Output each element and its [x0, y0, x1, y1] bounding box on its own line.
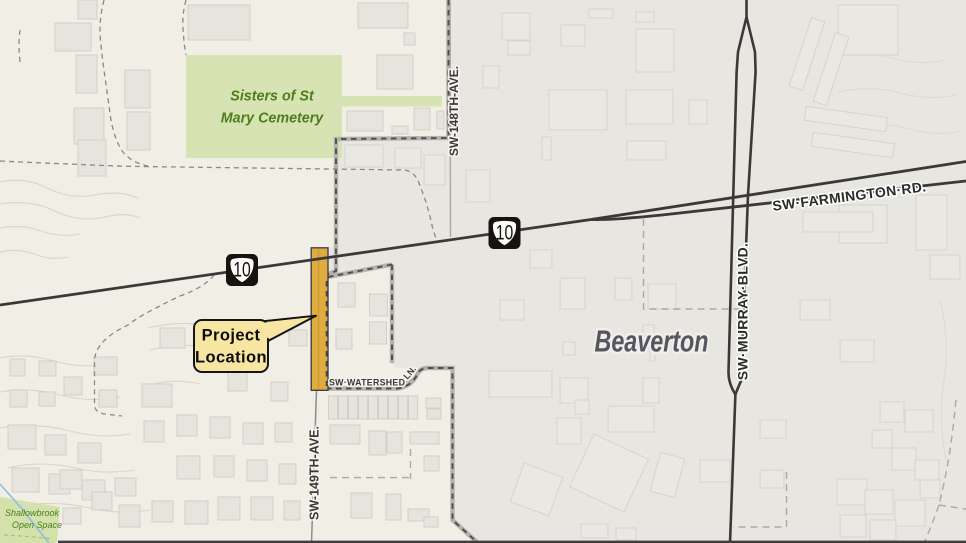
svg-text:10: 10 [233, 259, 251, 282]
svg-text:SW·MURRAY·BLVD.: SW·MURRAY·BLVD. [735, 243, 751, 381]
svg-text:SW-148TH-AVE.: SW-148TH-AVE. [447, 66, 461, 156]
svg-text:SW·WATERSHED: SW·WATERSHED [329, 378, 405, 388]
svg-text:SW-149TH-AVE.: SW-149TH-AVE. [308, 426, 322, 520]
svg-text:Shallowbrook: Shallowbrook [5, 508, 60, 518]
svg-text:Sisters of St: Sisters of St [230, 89, 315, 105]
svg-text:Mary Cemetery: Mary Cemetery [221, 111, 325, 127]
svg-text:Project: Project [202, 327, 261, 345]
svg-text:10: 10 [496, 222, 514, 245]
svg-text:Location: Location [195, 349, 267, 367]
svg-text:Beaverton: Beaverton [595, 324, 709, 359]
svg-text:Open Space: Open Space [12, 520, 62, 530]
